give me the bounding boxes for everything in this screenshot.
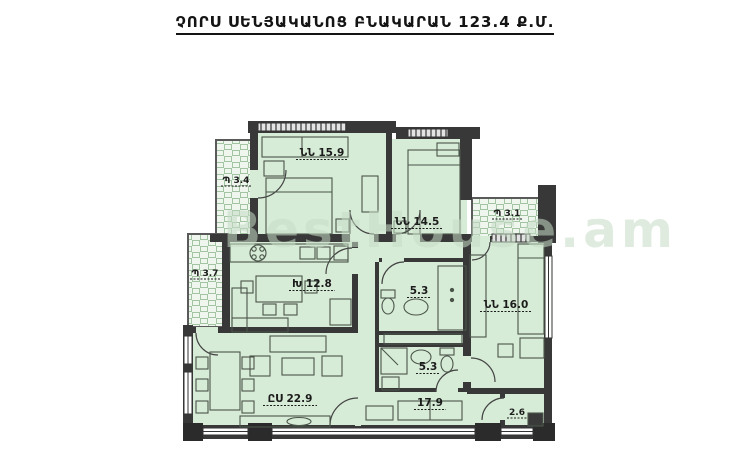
wall-bed2-east [460,139,472,200]
window-top-1 [258,123,346,131]
door-gap-storage [500,398,505,420]
pier-2 [248,423,272,441]
label-bathroom-lower: 5.3 [419,361,438,373]
window-left-group [184,336,192,414]
label-bedroom-3: ՆՆ 16.0 [484,299,529,311]
floorplan-drawing: BestHouse.am ՆՆ 15.9 ՆՆ 14.5 ՆՆ 16.0 Խ 1… [0,0,730,450]
label-balcony-top: Պ 3.4 [223,176,250,186]
label-storage: 2.6 [509,408,525,418]
watermark: BestHouse.am [223,201,677,259]
label-bathroom-upper: 5.3 [410,285,429,297]
window-east-group [545,256,552,338]
label-bedroom-2: ՆՆ 14.5 [395,216,440,228]
floorplan-page: ՉՈՐՍ ՍԵՆՅԱԿԱՆՈՑ ԲՆԱԿԱՐԱՆ 123.4 Ք.Մ. [0,0,730,450]
door-gap-bed1-balcony [250,170,258,198]
drain-dot [450,288,453,291]
pier-3 [475,423,501,441]
pier-1 [183,423,203,441]
door-gap-living [355,396,361,426]
label-kitchen: Խ 12.8 [292,278,332,290]
label-balcony-left: Պ 3.7 [192,269,219,279]
wall-bath-west [375,262,379,392]
drain-dot [450,298,453,301]
door-gap-bed3 [463,356,471,382]
label-hallway: 17.9 [417,397,443,409]
label-living-room: ԸՍ 22.9 [268,393,313,405]
storage-shelf [528,413,543,426]
bedroom-3-floor [467,240,546,390]
label-balcony-right: Պ 3.1 [494,209,521,219]
window-top-2 [408,129,448,137]
wall-bed3-south [467,388,552,394]
door-gap-bath2 [436,388,458,392]
label-bedroom-1: ՆՆ 15.9 [300,147,345,159]
door-gap-living-balcony [196,327,218,333]
